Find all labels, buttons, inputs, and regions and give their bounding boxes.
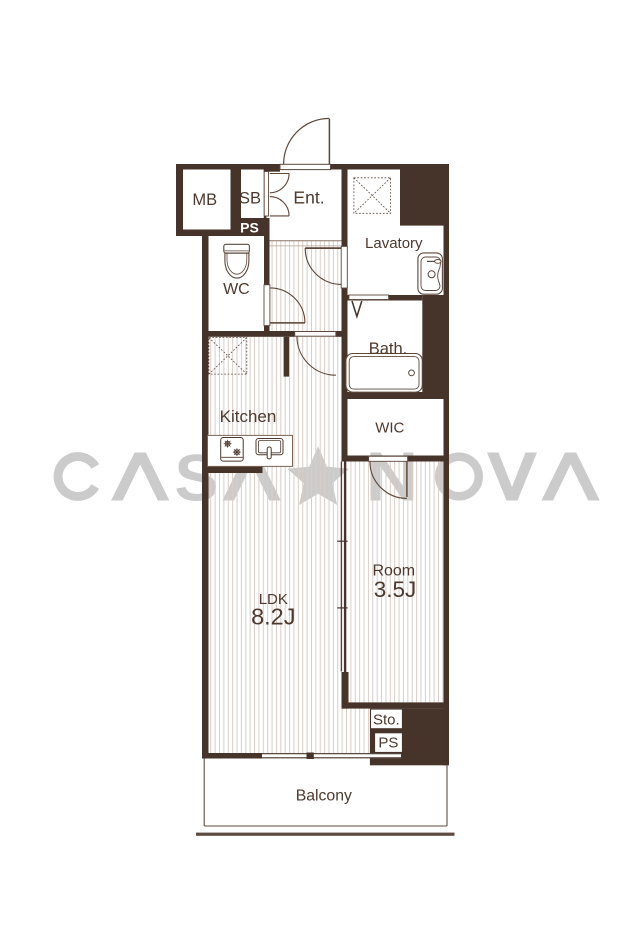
svg-text:Lavatory: Lavatory	[365, 235, 423, 252]
svg-text:SB: SB	[239, 190, 261, 208]
svg-text:8.2J: 8.2J	[251, 603, 295, 629]
svg-text:3.5J: 3.5J	[374, 577, 417, 602]
svg-text:Ent.: Ent.	[293, 187, 324, 207]
svg-text:Balcony: Balcony	[296, 788, 352, 805]
svg-text:PS: PS	[240, 220, 259, 236]
svg-text:Sto.: Sto.	[373, 711, 400, 728]
svg-text:WIC: WIC	[375, 420, 404, 437]
svg-text:MB: MB	[192, 191, 217, 209]
svg-text:WC: WC	[223, 281, 250, 298]
svg-text:PS: PS	[378, 735, 398, 752]
svg-text:Kitchen: Kitchen	[220, 407, 277, 426]
svg-text:Bath.: Bath.	[369, 340, 408, 358]
